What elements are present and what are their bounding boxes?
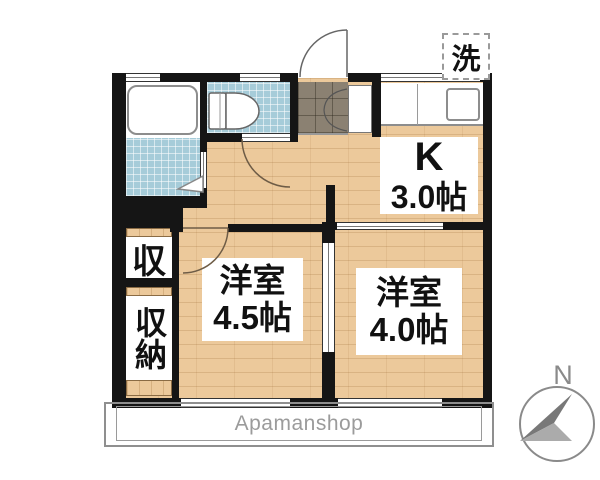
kitchen-area: 3.0帖 (391, 180, 468, 216)
window-bathroom (126, 73, 160, 82)
wall-shoebox-kitchen (372, 78, 381, 137)
kitchen-label: K 3.0帖 (380, 137, 478, 214)
toilet-room-floor (207, 82, 290, 133)
wall-right (483, 73, 492, 408)
kitchen-sink (446, 88, 480, 121)
shoe-cabinet (348, 85, 372, 133)
closet-large-label: 収納 (126, 296, 172, 380)
entry-genkan-floor (298, 82, 348, 135)
bathtub (127, 85, 198, 135)
kitchen-name: K (415, 135, 444, 180)
bathroom-floor (126, 138, 200, 196)
brand-label: Apamanshop (235, 412, 364, 436)
kitchen-counter-divider (417, 84, 418, 125)
wall-room45-top (228, 224, 335, 232)
room45-label: 洋室 4.5帖 (202, 258, 303, 341)
wall-closet-divider (112, 278, 172, 287)
closet-small-label: 収 (126, 238, 172, 278)
floor-plan: 収 収納 K 3.0帖 洋室 4.5帖 洋室 4.0帖 (0, 0, 600, 480)
closet-small-text: 収 (132, 234, 166, 283)
sliding-door-kitchen-room40 (337, 222, 443, 230)
wall-top-3 (280, 73, 298, 82)
wall-mid-rooms-bottom (322, 352, 335, 398)
wall-mid-rooms-top (322, 224, 335, 243)
wall-toilet-genkan (290, 82, 298, 142)
room45-area: 4.5帖 (213, 300, 292, 337)
wall-top-2 (160, 73, 240, 82)
laundry-space: 洗 (442, 33, 490, 80)
balcony-inner: Apamanshop (116, 406, 482, 441)
closet-large-shelf-bottom (126, 380, 172, 396)
closet-large-shelf-top (126, 287, 172, 296)
wall-left (112, 73, 126, 403)
wall-bath-toilet (200, 82, 207, 152)
wall-top-1 (112, 73, 126, 82)
compass-icon (520, 387, 594, 461)
doorway-toilet (242, 133, 290, 142)
doorway-bathroom (200, 152, 207, 188)
north-label: N (545, 360, 581, 390)
room40-label: 洋室 4.0帖 (356, 268, 462, 355)
wall-hall-kitchen-stub (326, 185, 335, 225)
entry-door-arc (300, 30, 347, 77)
wall-hall-connector (170, 196, 183, 232)
room40-area: 4.0帖 (370, 312, 449, 349)
wall-bath-bottom (112, 196, 207, 208)
window-toilet (240, 73, 280, 82)
closet-large-text: 収納 (133, 306, 165, 370)
wall-toilet-bottom (207, 133, 242, 142)
room45-name: 洋室 (220, 263, 286, 300)
compass-needle-light (520, 423, 572, 441)
laundry-label: 洗 (451, 36, 480, 78)
sliding-door-rooms (322, 243, 335, 352)
compass-needle-dark (520, 394, 572, 441)
room40-name: 洋室 (376, 275, 442, 312)
wall-kitchen-bottom-2 (443, 222, 492, 230)
wall-closet-front (172, 228, 179, 398)
wall-closet-top (112, 208, 179, 228)
